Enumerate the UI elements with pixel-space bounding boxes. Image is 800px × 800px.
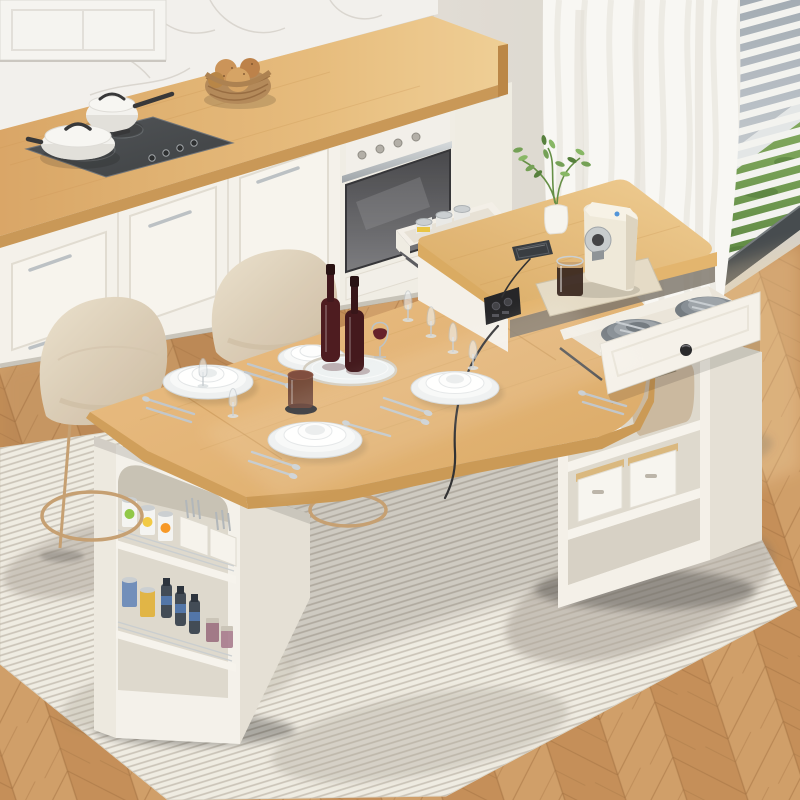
lighting: [0, 0, 800, 800]
scene-canvas: [0, 0, 800, 800]
warm-tint: [0, 0, 800, 800]
product-photo-kitchen-island: [0, 0, 800, 800]
